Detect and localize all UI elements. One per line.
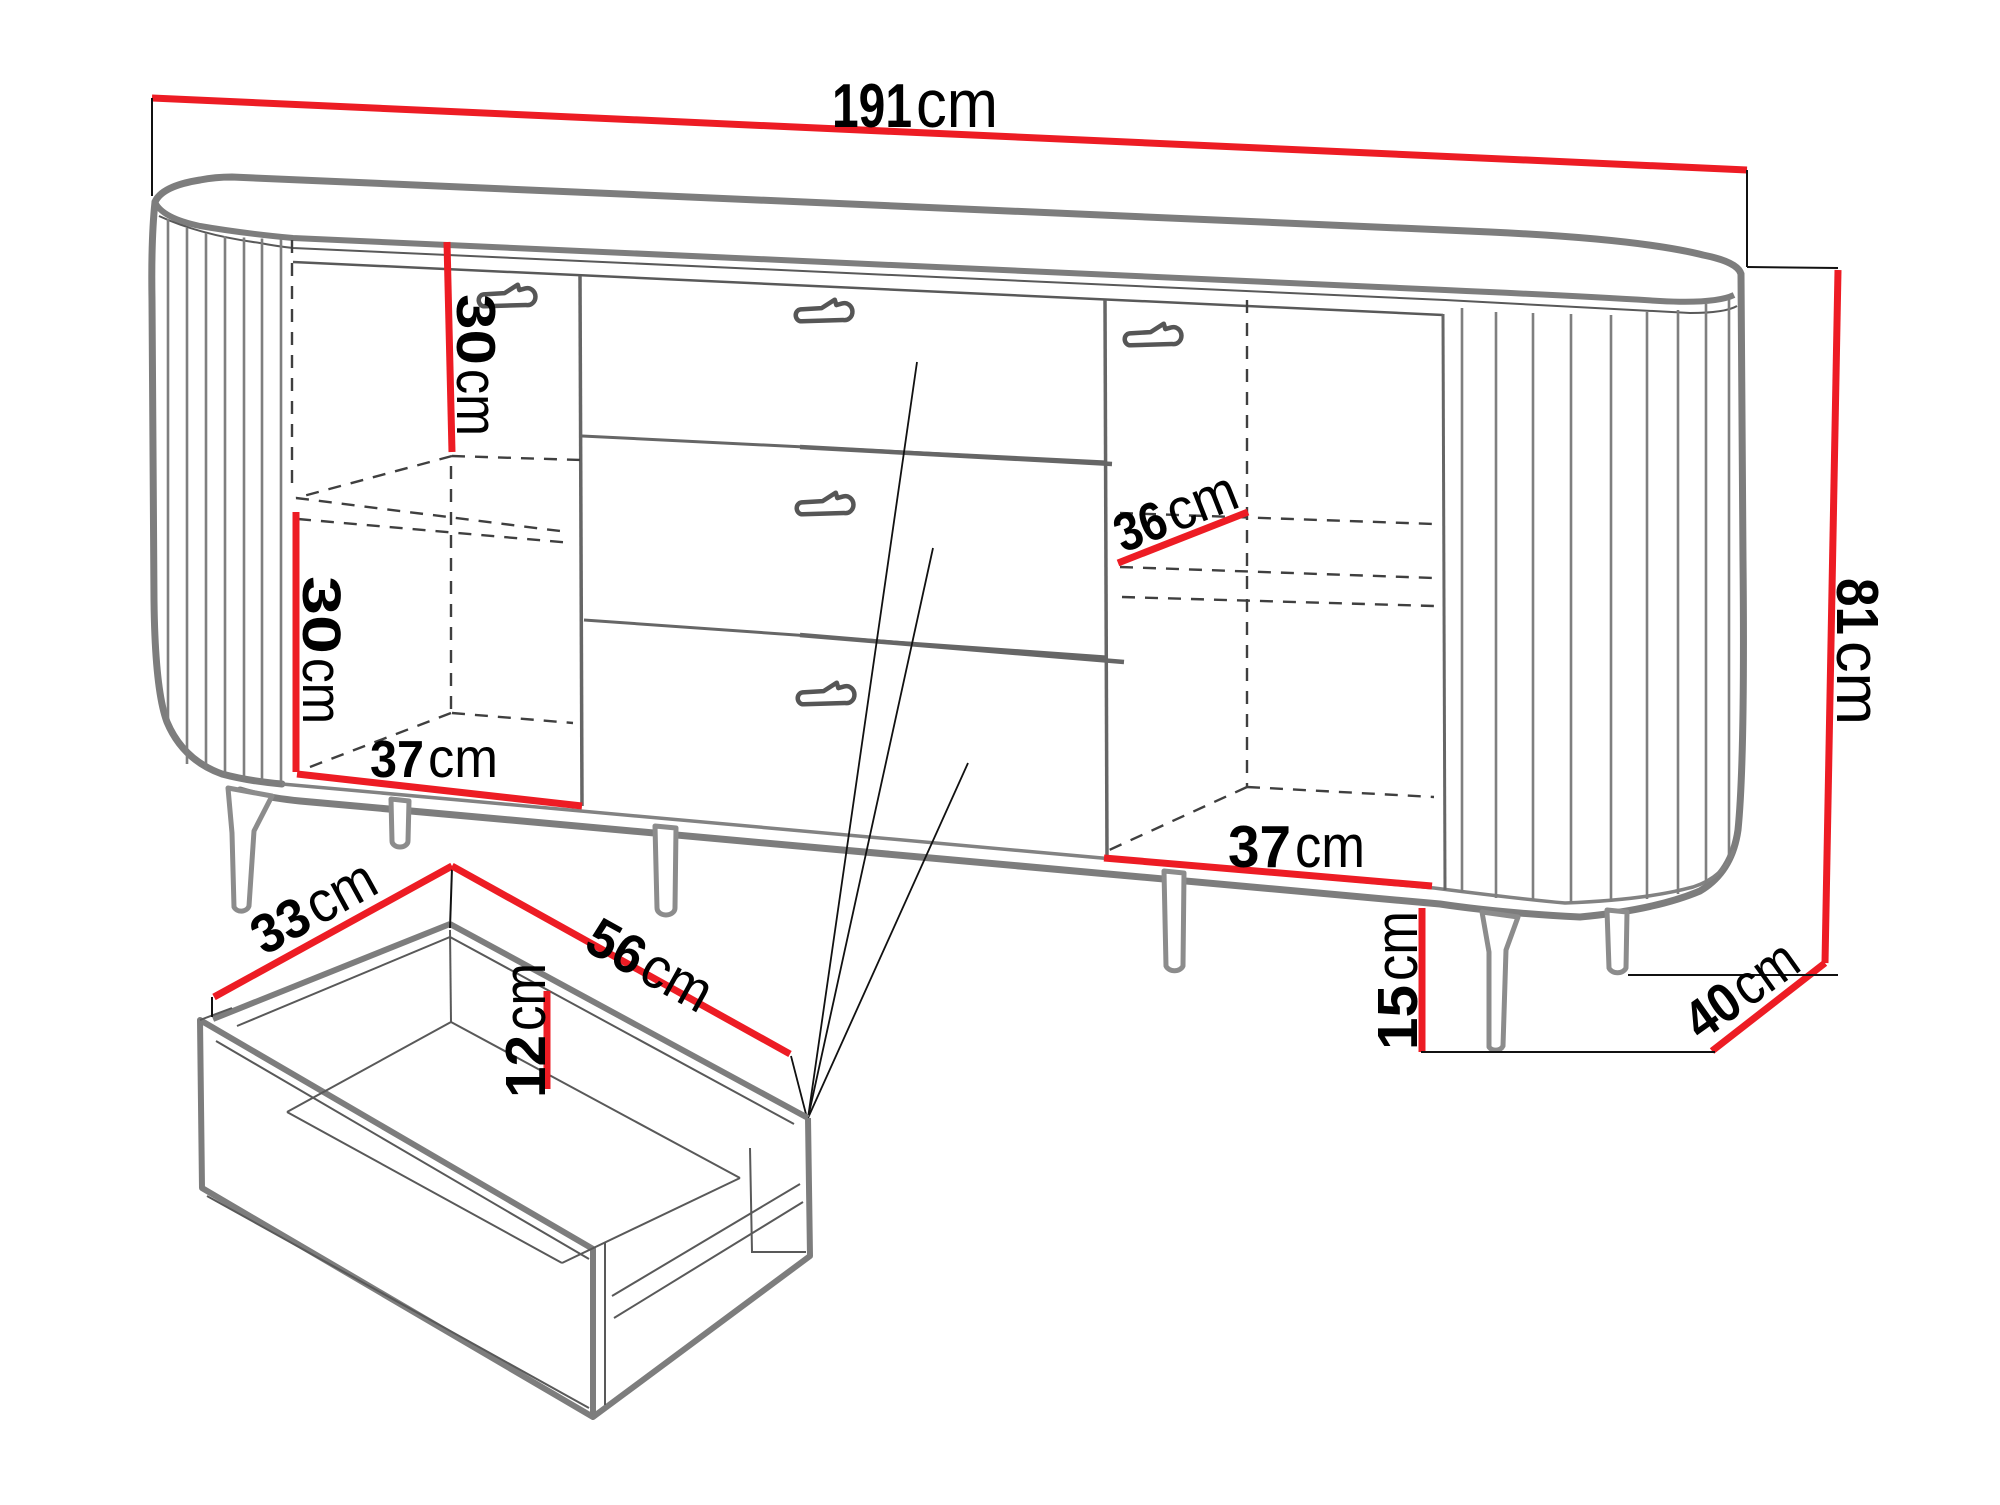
svg-text:cm: cm — [1363, 911, 1430, 981]
svg-text:cm: cm — [1823, 641, 1892, 725]
svg-text:cm: cm — [916, 66, 998, 142]
svg-text:30: 30 — [291, 576, 351, 654]
svg-text:30: 30 — [445, 294, 507, 365]
svg-text:cm: cm — [428, 726, 498, 789]
svg-text:cm: cm — [1295, 813, 1365, 880]
svg-text:81: 81 — [1824, 578, 1890, 635]
svg-text:37: 37 — [1228, 814, 1291, 880]
svg-text:15: 15 — [1366, 985, 1430, 1050]
svg-text:37: 37 — [370, 731, 424, 789]
svg-text:cm: cm — [444, 369, 509, 436]
svg-text:cm: cm — [491, 963, 558, 1031]
svg-text:cm: cm — [290, 658, 354, 724]
svg-text:191: 191 — [832, 72, 912, 141]
svg-text:12: 12 — [494, 1035, 558, 1098]
